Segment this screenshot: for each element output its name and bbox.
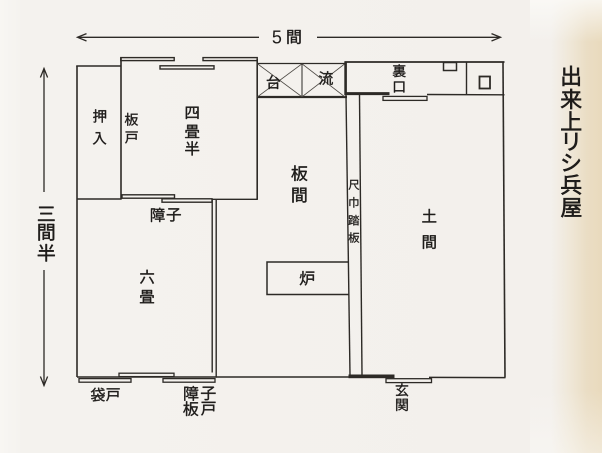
svg-text:5: 5 [272, 28, 282, 48]
